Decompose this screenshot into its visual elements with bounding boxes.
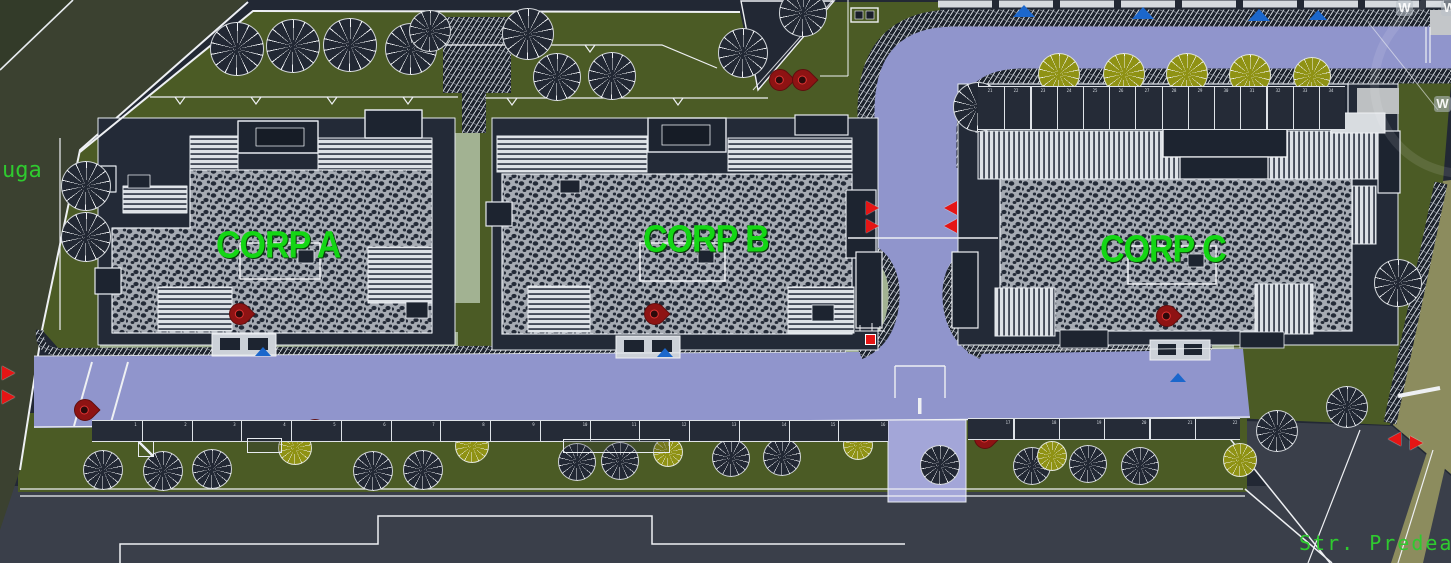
stall-number: 18 <box>1051 422 1056 426</box>
stall-number: 10 <box>582 424 587 428</box>
dark-tree-icon <box>61 212 111 262</box>
red-arrow-marker-icon <box>2 366 15 380</box>
dark-tree-icon <box>83 450 123 490</box>
stall-divider <box>1149 419 1150 439</box>
stall-number: 22 <box>1014 90 1019 94</box>
stall-divider <box>341 421 342 441</box>
stall-number: 6 <box>383 424 385 428</box>
stall-divider <box>1240 87 1241 129</box>
stall-number: 14 <box>781 424 786 428</box>
stall-number: 21 <box>988 90 993 94</box>
location-pin-icon <box>787 64 818 95</box>
dark-tree-icon <box>779 0 827 37</box>
stall-divider <box>1083 87 1084 129</box>
stall-number: 19 <box>1097 422 1102 426</box>
stall-number: 28 <box>1171 90 1176 94</box>
location-pin-icon <box>224 298 255 329</box>
stall-divider <box>739 421 740 441</box>
stall-divider <box>440 421 441 441</box>
stall-number: 11 <box>632 424 637 428</box>
blue-triangle-marker-icon <box>1013 5 1035 17</box>
site-plan-canvas: CORP A CORP B CORP C uga Str. Predeal WW… <box>0 0 1451 563</box>
stall-divider <box>1104 419 1105 439</box>
stall-number: 1 <box>134 424 136 428</box>
dark-tree-icon <box>210 22 264 76</box>
dark-tree-icon <box>920 445 960 485</box>
stall-number: 15 <box>831 424 836 428</box>
stall-number: 31 <box>1250 90 1255 94</box>
dark-tree-icon <box>403 450 443 490</box>
dark-tree-icon <box>192 449 232 489</box>
dark-tree-icon <box>143 451 183 491</box>
stall-number: 13 <box>731 424 736 428</box>
red-square-marker <box>865 334 876 345</box>
dark-tree-icon <box>323 18 377 72</box>
stall-number: 5 <box>333 424 335 428</box>
olive-tree-icon <box>1037 441 1067 471</box>
stall-number: 7 <box>433 424 435 428</box>
red-arrow-marker-icon <box>866 201 879 215</box>
pin-ring <box>78 404 91 417</box>
dark-tree-icon <box>1326 386 1368 428</box>
watermark-tile: W <box>1441 0 1451 16</box>
pin-ring <box>773 74 786 87</box>
label-corp-a: CORP A <box>216 224 340 268</box>
stall-divider <box>391 421 392 441</box>
red-arrow-marker-icon <box>2 390 15 404</box>
stall-divider <box>1319 87 1320 129</box>
stall-divider <box>490 421 491 441</box>
dark-tree-icon <box>1121 447 1159 485</box>
stall-number: 23 <box>1040 90 1045 94</box>
blue-triangle-marker-icon <box>255 347 271 356</box>
utility-box <box>138 441 154 457</box>
stall-number: 9 <box>532 424 534 428</box>
blue-triangle-marker-icon <box>657 348 673 357</box>
dark-tree-icon <box>409 10 451 52</box>
stall-divider <box>689 421 690 441</box>
red-arrow-marker-icon <box>1410 436 1423 450</box>
blue-triangle-marker-icon <box>1170 373 1186 382</box>
stall-number: 30 <box>1224 90 1229 94</box>
pin-ring <box>1160 310 1173 323</box>
stall-number: 16 <box>881 424 886 428</box>
parking-row: 2122232425262728293031323334 <box>978 86 1345 130</box>
location-pin-icon <box>1151 300 1182 331</box>
dark-tree-icon <box>266 19 320 73</box>
bench-outline <box>563 439 670 453</box>
stall-number: 27 <box>1145 90 1150 94</box>
blue-triangle-marker-icon <box>1309 10 1327 20</box>
dark-tree-icon <box>1069 445 1107 483</box>
red-arrow-marker-icon <box>1388 432 1401 446</box>
stall-divider <box>1195 419 1196 439</box>
dark-tree-icon <box>1256 410 1298 452</box>
dark-tree-icon <box>502 8 554 60</box>
stall-divider <box>590 421 591 441</box>
location-pin-icon <box>639 298 670 329</box>
stall-divider <box>540 421 541 441</box>
stall-divider <box>1013 419 1014 439</box>
pin-ring <box>233 308 246 321</box>
dark-tree-icon <box>533 53 581 101</box>
stall-divider <box>1059 419 1060 439</box>
stall-divider <box>1162 87 1163 129</box>
stall-divider <box>1030 87 1031 129</box>
red-arrow-marker-icon <box>944 201 957 215</box>
stall-divider <box>1135 87 1136 129</box>
bench-outline <box>247 438 282 453</box>
dark-tree-icon <box>61 161 111 211</box>
stall-divider <box>789 421 790 441</box>
pin-ring <box>796 74 809 87</box>
olive-tree-icon <box>1223 443 1257 477</box>
stall-number: 34 <box>1328 90 1333 94</box>
stall-number: 3 <box>234 424 236 428</box>
stall-number: 2 <box>184 424 186 428</box>
watermark-tile: W <box>1396 0 1413 16</box>
stall-divider <box>1266 87 1267 129</box>
stall-divider <box>1004 87 1005 129</box>
stall-divider <box>1293 87 1294 129</box>
stall-divider <box>1214 87 1215 129</box>
stall-divider <box>291 421 292 441</box>
label-street-predeal: Str. Predeal <box>1299 531 1451 555</box>
stall-number: 20 <box>1142 422 1147 426</box>
label-street-uga: uga <box>2 158 42 183</box>
stall-number: 32 <box>1276 90 1281 94</box>
stall-number: 25 <box>1093 90 1098 94</box>
watermark-arc <box>1370 0 1451 178</box>
stall-divider <box>241 421 242 441</box>
stall-divider <box>1057 87 1058 129</box>
dark-tree-icon <box>353 451 393 491</box>
stall-divider <box>1109 87 1110 129</box>
stall-divider <box>838 421 839 441</box>
label-corp-b: CORP B <box>643 218 769 262</box>
red-arrow-marker-icon <box>866 219 879 233</box>
parking-row: 171819202122 <box>968 418 1240 440</box>
stall-number: 22 <box>1233 422 1238 426</box>
dark-tree-icon <box>712 439 750 477</box>
label-corp-c: CORP C <box>1100 228 1226 272</box>
stall-number: 26 <box>1119 90 1124 94</box>
stall-number: 17 <box>1006 422 1011 426</box>
stall-number: 33 <box>1302 90 1307 94</box>
dark-tree-icon <box>588 52 636 100</box>
stall-number: 8 <box>482 424 484 428</box>
dark-tree-icon <box>718 28 768 78</box>
stall-divider <box>142 421 143 441</box>
stall-number: 12 <box>682 424 687 428</box>
blue-triangle-marker-icon <box>1132 7 1154 19</box>
stall-number: 24 <box>1066 90 1071 94</box>
stall-number: 4 <box>283 424 285 428</box>
annotation-overlay: CORP A CORP B CORP C uga Str. Predeal WW… <box>0 0 1451 563</box>
stall-divider <box>192 421 193 441</box>
blue-triangle-marker-icon <box>1248 9 1270 21</box>
pin-ring <box>648 308 661 321</box>
watermark-tile: W <box>1434 96 1451 112</box>
dark-tree-icon <box>763 438 801 476</box>
red-arrow-marker-icon <box>944 219 957 233</box>
stall-number: 29 <box>1197 90 1202 94</box>
stall-number: 21 <box>1187 422 1192 426</box>
stall-divider <box>639 421 640 441</box>
dark-tree-icon <box>1374 259 1422 307</box>
stall-divider <box>1188 87 1189 129</box>
parking-row: 12345678910111213141516 <box>92 420 888 442</box>
